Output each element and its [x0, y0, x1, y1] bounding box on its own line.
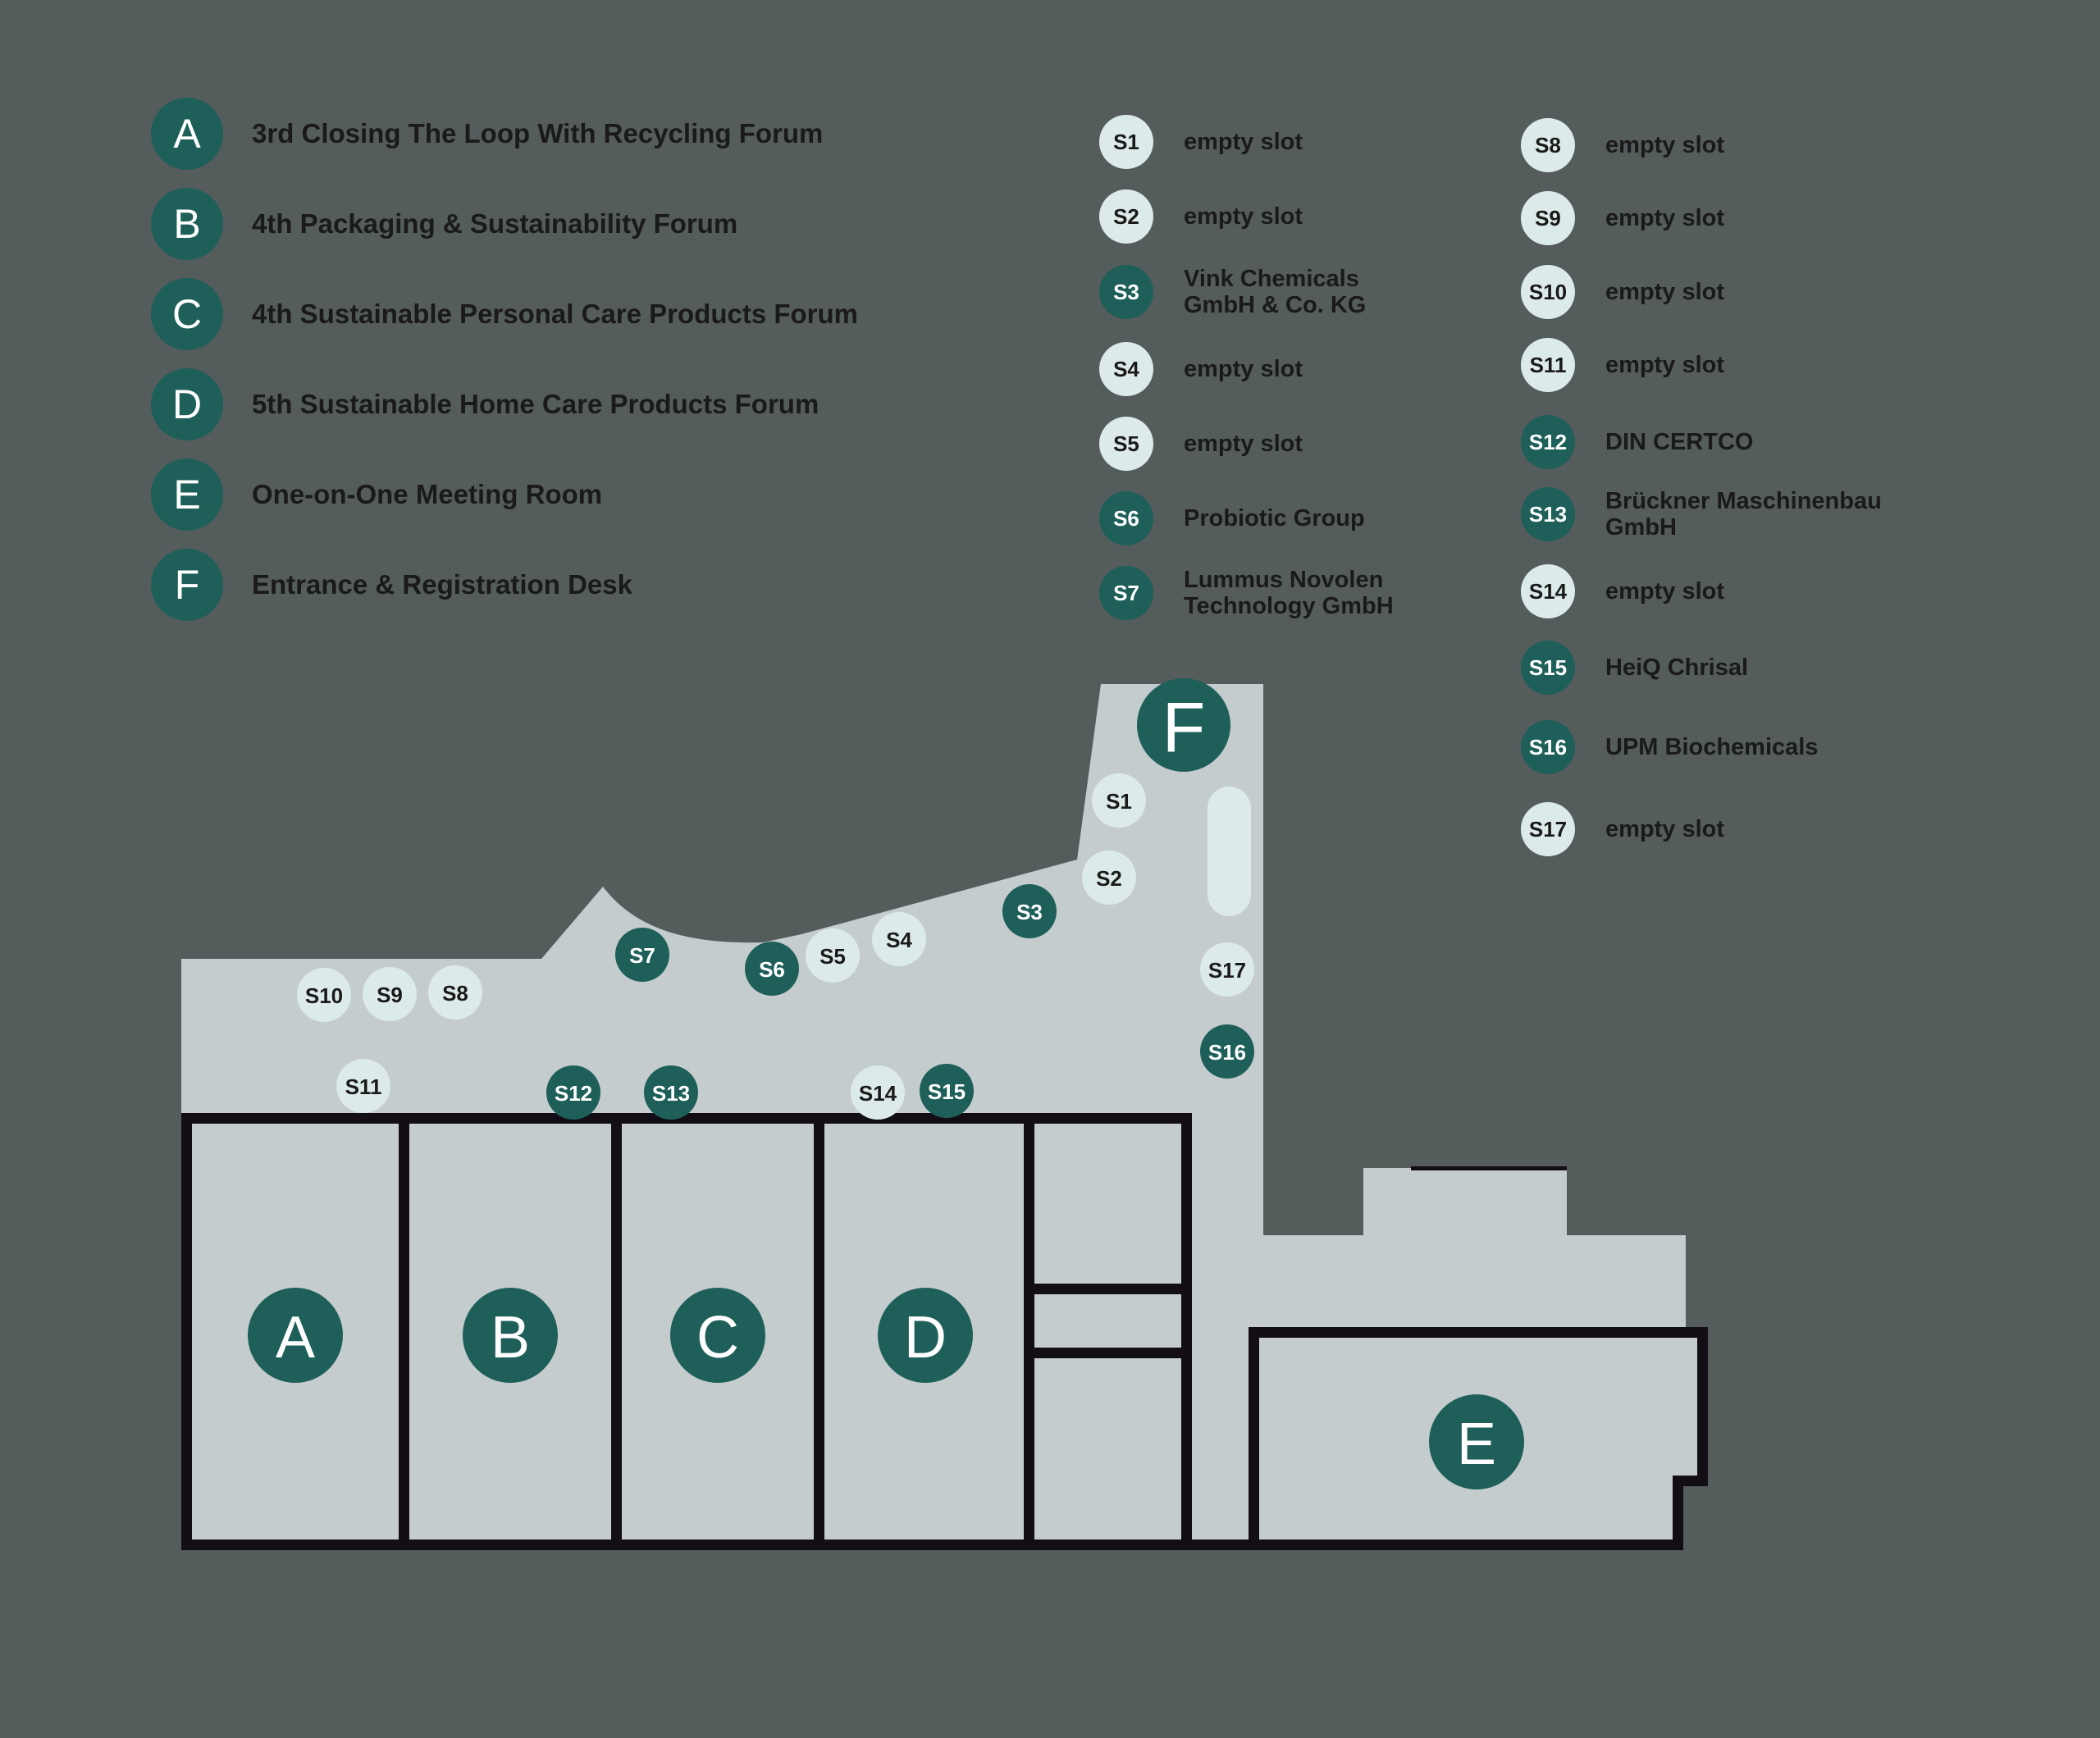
- slot-badge: S7: [1099, 566, 1153, 620]
- room-badge: B: [151, 188, 223, 260]
- legend-slot-row: S9 empty slot: [1521, 191, 1724, 245]
- map-slot-s12-label: S12: [555, 1081, 592, 1106]
- slot-label: empty slot: [1605, 205, 1724, 231]
- slot-label: Probiotic Group: [1184, 505, 1365, 531]
- legend-room-row: B 4th Packaging & Sustainability Forum: [151, 188, 737, 260]
- legend-slot-row: S17 empty slot: [1521, 802, 1724, 856]
- legend-room-row: E One-on-One Meeting Room: [151, 458, 602, 531]
- map-slot-s11-label: S11: [345, 1074, 382, 1099]
- room-badge: A: [151, 98, 223, 170]
- slot-badge: S12: [1521, 415, 1575, 469]
- legend-slot-row: S12 DIN CERTCO: [1521, 415, 1753, 469]
- map-room-d-label: D: [904, 1305, 947, 1371]
- map-slot-s17-label: S17: [1208, 958, 1246, 983]
- annex-wall-line: [1411, 1166, 1567, 1170]
- map-slot-s8-label: S8: [442, 981, 468, 1006]
- map-slot-s7-label: S7: [629, 943, 655, 968]
- legend-slot-row: S4 empty slot: [1099, 342, 1303, 396]
- map-slot-s4-label: S4: [886, 928, 912, 952]
- room-badge: C: [151, 278, 223, 350]
- legend-room-row: D 5th Sustainable Home Care Products For…: [151, 368, 819, 440]
- room-badge: D: [151, 368, 223, 440]
- map-slot-s6-label: S6: [759, 957, 785, 982]
- slot-label: empty slot: [1184, 431, 1303, 457]
- slot-label: empty slot: [1605, 132, 1724, 158]
- slot-badge: S13: [1521, 487, 1575, 541]
- legend-slot-row: S2 empty slot: [1099, 189, 1303, 244]
- side-room-divider-2: [1024, 1348, 1192, 1358]
- slot-badge: S9: [1521, 191, 1575, 245]
- map-slot-s2-label: S2: [1096, 866, 1122, 891]
- side-room-divider-1: [1024, 1284, 1192, 1294]
- slot-badge: S6: [1099, 491, 1153, 545]
- legend-slot-row: S7 Lummus Novolen Technology GmbH: [1099, 566, 1394, 620]
- legend-slot-row: S13 Brückner Maschinenbau GmbH: [1521, 487, 1882, 541]
- map-room-a-label: A: [276, 1305, 315, 1371]
- room-label: 4th Packaging & Sustainability Forum: [252, 209, 737, 239]
- legend-room-row: C 4th Sustainable Personal Care Products…: [151, 278, 858, 350]
- map-room-b-label: B: [491, 1305, 530, 1371]
- map-slot-s9-label: S9: [377, 983, 403, 1007]
- slot-badge: S17: [1521, 802, 1575, 856]
- legend-slot-row: S15 HeiQ Chrisal: [1521, 641, 1748, 695]
- slot-badge: S16: [1521, 720, 1575, 774]
- slot-label: empty slot: [1184, 129, 1303, 155]
- legend-slot-row: S11 empty slot: [1521, 338, 1724, 392]
- side-rooms-outline: [1029, 1119, 1187, 1545]
- slot-label: empty slot: [1184, 356, 1303, 382]
- room-label: 4th Sustainable Personal Care Products F…: [252, 299, 858, 330]
- slot-label: HeiQ Chrisal: [1605, 655, 1748, 681]
- legend-room-row: A 3rd Closing The Loop With Recycling Fo…: [151, 98, 823, 170]
- legend-slot-row: S1 empty slot: [1099, 115, 1303, 169]
- map-slot-s5-label: S5: [819, 944, 846, 969]
- room-label: One-on-One Meeting Room: [252, 480, 602, 510]
- room-label: Entrance & Registration Desk: [252, 570, 632, 600]
- map-slot-s14-label: S14: [859, 1081, 897, 1106]
- slot-badge: S4: [1099, 342, 1153, 396]
- slot-label: UPM Biochemicals: [1605, 734, 1818, 760]
- slot-badge: S5: [1099, 417, 1153, 471]
- legend-slot-row: S16 UPM Biochemicals: [1521, 720, 1818, 774]
- slot-label: empty slot: [1605, 578, 1724, 604]
- slot-badge: S8: [1521, 118, 1575, 172]
- room-label: 3rd Closing The Loop With Recycling Foru…: [252, 119, 823, 149]
- legend-slot-row: S14 empty slot: [1521, 564, 1724, 618]
- map-slot-s15-label: S15: [928, 1079, 966, 1104]
- slot-label: empty slot: [1605, 352, 1724, 378]
- legend-room-row: F Entrance & Registration Desk: [151, 549, 632, 621]
- slot-badge: S2: [1099, 189, 1153, 244]
- slot-label: Lummus Novolen Technology GmbH: [1184, 567, 1394, 620]
- legend-slot-row: S5 empty slot: [1099, 417, 1303, 471]
- slot-badge: S1: [1099, 115, 1153, 169]
- slot-badge: S14: [1521, 564, 1575, 618]
- legend-slot-row: S10 empty slot: [1521, 265, 1724, 319]
- legend-slot-row: S8 empty slot: [1521, 118, 1724, 172]
- slot-label: Brückner Maschinenbau GmbH: [1605, 488, 1882, 541]
- map-slot-s10-label: S10: [305, 983, 343, 1008]
- map-room-f-label: F: [1162, 688, 1206, 767]
- slot-badge: S11: [1521, 338, 1575, 392]
- slot-label: empty slot: [1605, 279, 1724, 305]
- slot-badge: S10: [1521, 265, 1575, 319]
- room-badge: F: [151, 549, 223, 621]
- map-slot-s13-label: S13: [652, 1081, 690, 1106]
- slot-label: empty slot: [1184, 203, 1303, 230]
- slot-badge: S15: [1521, 641, 1575, 695]
- slot-label: Vink Chemicals GmbH & Co. KG: [1184, 266, 1366, 319]
- map-room-e-label: E: [1457, 1412, 1496, 1477]
- registration-desk: [1207, 787, 1251, 916]
- slot-badge: S3: [1099, 265, 1153, 319]
- map-slot-s16-label: S16: [1208, 1040, 1246, 1065]
- event-floorplan: S1S2S3S4S5S6S7S8S9S10S11S12S13S14S15S16S…: [0, 0, 2100, 1738]
- map-room-c-label: C: [696, 1305, 739, 1371]
- map-slot-s1-label: S1: [1106, 789, 1132, 814]
- legend-slot-row: S3 Vink Chemicals GmbH & Co. KG: [1099, 265, 1366, 319]
- slot-label: DIN CERTCO: [1605, 429, 1753, 455]
- room-badge: E: [151, 458, 223, 531]
- map-slot-s3-label: S3: [1016, 900, 1043, 924]
- legend-slot-row: S6 Probiotic Group: [1099, 491, 1365, 545]
- slot-label: empty slot: [1605, 816, 1724, 842]
- room-label: 5th Sustainable Home Care Products Forum: [252, 390, 819, 420]
- floorplan-svg: S1S2S3S4S5S6S7S8S9S10S11S12S13S14S15S16S…: [0, 0, 2100, 1738]
